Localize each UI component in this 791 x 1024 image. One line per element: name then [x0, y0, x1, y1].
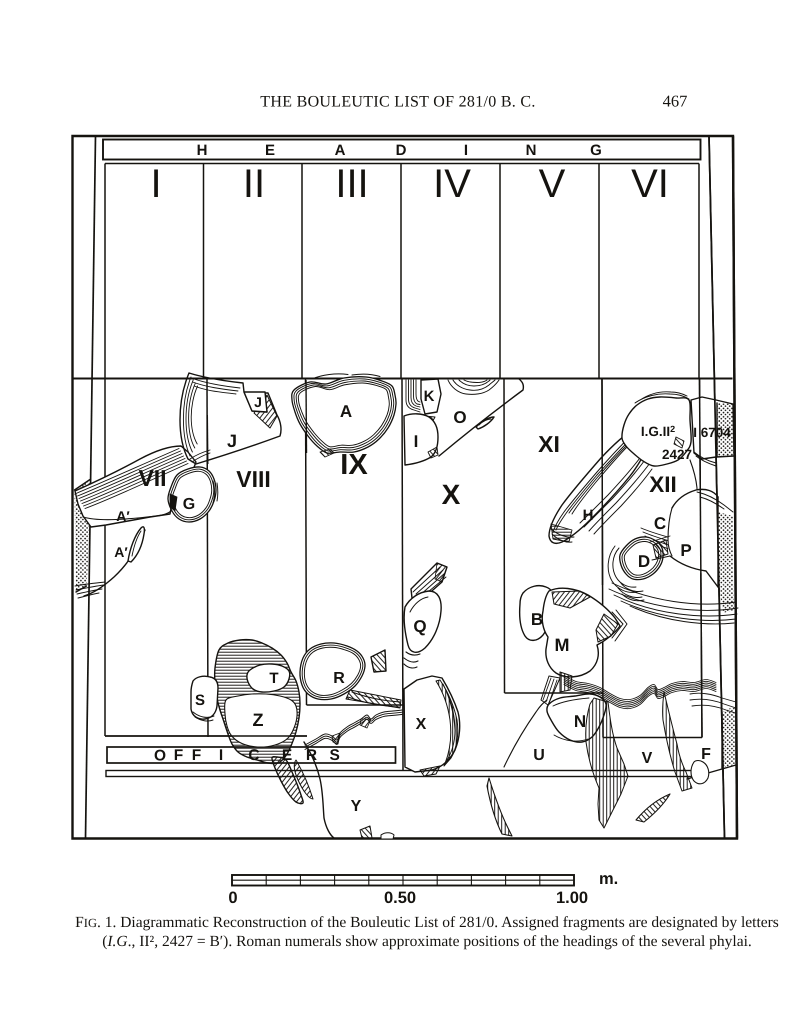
svg-text:m.: m.: [599, 870, 618, 888]
svg-text:III: III: [335, 162, 368, 206]
svg-text:Z: Z: [253, 710, 264, 730]
svg-text:F: F: [174, 747, 183, 764]
svg-text:0: 0: [228, 889, 237, 907]
svg-text:IX: IX: [340, 449, 368, 481]
svg-text:J: J: [227, 431, 237, 451]
svg-text:II: II: [243, 162, 265, 206]
svg-text:E: E: [265, 142, 275, 159]
svg-text:J: J: [254, 394, 262, 410]
svg-text:D: D: [396, 142, 407, 159]
svg-text:A: A: [340, 402, 352, 421]
svg-text:N: N: [574, 712, 586, 731]
svg-text:V: V: [539, 162, 566, 206]
svg-text:A′: A′: [114, 544, 128, 560]
svg-text:I: I: [219, 747, 223, 764]
svg-text:467: 467: [663, 92, 688, 111]
svg-text:I.G.II2: I.G.II2: [641, 424, 675, 439]
svg-text:K: K: [424, 388, 435, 405]
svg-text:G: G: [183, 496, 195, 513]
svg-text:THE BOULEUTIC LIST OF 281/0 B.: THE BOULEUTIC LIST OF 281/0 B. C.: [260, 94, 535, 111]
svg-text:M: M: [555, 635, 570, 655]
svg-text:XII: XII: [649, 472, 677, 497]
svg-text:(I.G., II², 2427 = B′). Roman: (I.G., II², 2427 = B′). Roman numerals s…: [102, 933, 752, 950]
svg-text:X: X: [416, 716, 427, 733]
svg-text:S: S: [330, 747, 340, 764]
svg-text:S: S: [195, 692, 205, 709]
svg-text:Y: Y: [351, 798, 362, 815]
svg-text:A: A: [335, 142, 346, 159]
svg-text:0.50: 0.50: [384, 889, 416, 907]
svg-text:2427: 2427: [662, 447, 692, 462]
svg-text:B: B: [531, 610, 543, 629]
svg-text:FIG. 1. Diagrammatic Reconstr: FIG. 1. Diagrammatic Reconstruction of t…: [75, 914, 779, 931]
svg-text:V: V: [642, 750, 653, 767]
svg-text:D: D: [638, 552, 650, 571]
svg-text:VII: VII: [138, 465, 166, 491]
svg-text:X: X: [442, 479, 461, 510]
svg-text:P: P: [680, 541, 691, 560]
svg-text:VI: VI: [631, 162, 669, 206]
svg-text:U: U: [533, 747, 545, 764]
svg-text:Q: Q: [413, 617, 426, 636]
svg-text:I: I: [150, 162, 161, 206]
svg-text:XI: XI: [538, 431, 560, 457]
svg-text:I: I: [414, 432, 419, 451]
svg-text:A′: A′: [116, 508, 130, 524]
svg-text:G: G: [590, 142, 602, 159]
svg-text:I: I: [464, 142, 468, 159]
svg-text:T: T: [269, 670, 278, 687]
svg-text:R: R: [333, 670, 345, 687]
svg-text:H: H: [197, 142, 208, 159]
svg-text:F: F: [701, 746, 711, 763]
svg-text:I 6704: I 6704: [693, 425, 731, 440]
svg-text:F: F: [192, 747, 201, 764]
svg-text:O: O: [154, 748, 166, 765]
svg-text:IV: IV: [433, 162, 471, 206]
svg-text:1.00: 1.00: [556, 889, 588, 907]
svg-text:VIII: VIII: [236, 466, 271, 492]
svg-text:N: N: [526, 142, 537, 159]
svg-text:C: C: [654, 514, 666, 533]
svg-text:O: O: [453, 408, 466, 427]
